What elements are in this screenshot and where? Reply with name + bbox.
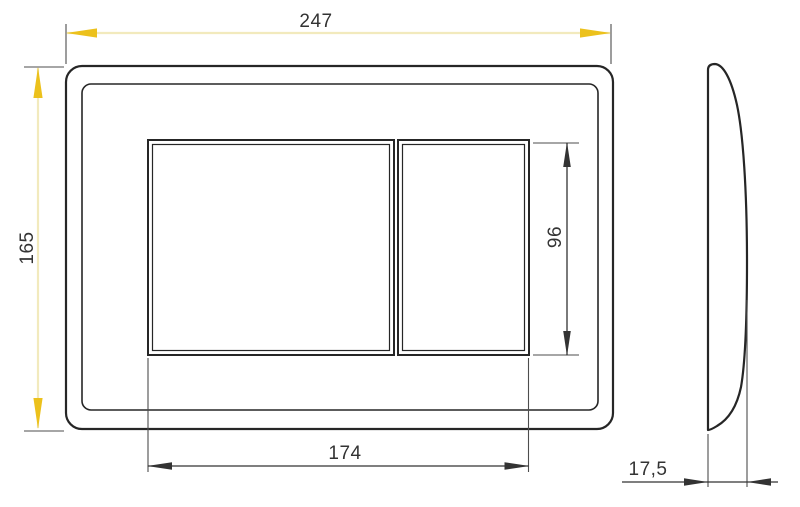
arrow-right-icon xyxy=(505,462,530,470)
dimension-overall-width: 247 xyxy=(66,11,611,64)
arrow-right-icon xyxy=(684,478,708,486)
dimension-thickness: 17,5 xyxy=(622,300,778,487)
technical-drawing-page: 247 165 174 96 xyxy=(0,0,800,507)
arrow-right-icon xyxy=(580,28,611,37)
buttons-width-label: 174 xyxy=(328,443,361,464)
arrow-left-icon xyxy=(66,28,97,37)
dimension-overall-height: 165 xyxy=(17,67,64,431)
side-view xyxy=(708,64,747,430)
dimension-buttons-width: 174 xyxy=(147,358,530,472)
arrow-up-icon xyxy=(563,142,571,167)
arrow-left-icon xyxy=(747,478,771,486)
side-profile-outline xyxy=(708,64,747,430)
large-button-outline xyxy=(148,140,394,355)
buttons-height-label: 96 xyxy=(545,226,566,248)
arrow-down-icon xyxy=(33,398,42,429)
overall-height-label: 165 xyxy=(17,231,38,264)
flush-plate-dimension-drawing: 247 165 174 96 xyxy=(0,0,800,507)
arrow-down-icon xyxy=(563,331,571,356)
overall-width-label: 247 xyxy=(299,11,332,32)
dimension-buttons-height: 96 xyxy=(533,142,579,356)
thickness-label: 17,5 xyxy=(629,459,668,480)
arrow-up-icon xyxy=(33,67,42,98)
arrow-left-icon xyxy=(147,462,172,470)
small-button-outline xyxy=(398,140,529,355)
